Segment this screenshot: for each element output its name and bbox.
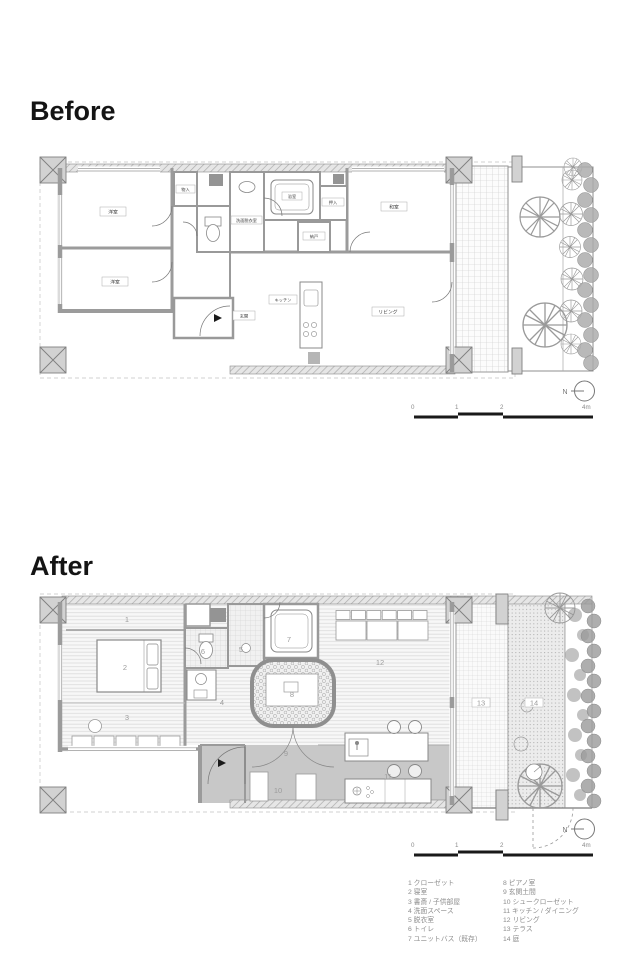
room-label-bed2: 洋室 xyxy=(102,277,128,286)
svg-text:キッチン: キッチン xyxy=(275,298,292,303)
room-number-1: 1 xyxy=(125,615,129,624)
room-label-kitchen: キッチン xyxy=(269,295,297,304)
room-label-living: リビング xyxy=(372,307,404,316)
top-wall xyxy=(62,596,592,604)
toilet-icon xyxy=(205,217,221,242)
svg-text:4m: 4m xyxy=(582,404,591,411)
legend-item-5: 5 脱衣室 xyxy=(408,916,503,925)
room-label-bath: 浴室 xyxy=(282,192,302,200)
svg-text:和室: 和室 xyxy=(389,204,399,211)
svg-text:物入: 物入 xyxy=(181,186,190,193)
svg-text:1: 1 xyxy=(455,842,459,849)
bottom-wall xyxy=(230,366,455,374)
room-number-5: 5 xyxy=(239,645,243,654)
bed xyxy=(97,640,161,692)
room-number-2: 2 xyxy=(123,663,127,672)
north-indicator: N xyxy=(562,819,594,839)
room-label-bed1: 洋室 xyxy=(100,207,126,216)
legend-item-12: 12 リビング xyxy=(503,916,633,925)
room-number-3: 3 xyxy=(125,713,129,722)
scale-bar: 0 1 2 4m xyxy=(411,842,593,857)
legend-item-13: 13 テラス xyxy=(503,925,633,934)
sofa xyxy=(336,611,428,641)
svg-text:0: 0 xyxy=(411,404,415,411)
bathtub xyxy=(271,610,312,652)
legend-item-4: 4 洗面スペース xyxy=(408,907,503,916)
svg-text:納戸: 納戸 xyxy=(310,233,318,240)
svg-text:浴室: 浴室 xyxy=(288,193,296,200)
legend-item-1: 1 クローゼット xyxy=(408,879,503,888)
after-title: After xyxy=(30,551,93,582)
vanity-counter xyxy=(187,670,216,700)
room-number-8: 8 xyxy=(290,690,294,699)
room-number-11: 11 xyxy=(384,772,392,781)
svg-text:4m: 4m xyxy=(582,842,591,849)
svg-text:リビング: リビング xyxy=(378,309,397,316)
room-number-10: 10 xyxy=(274,786,282,795)
before-title: Before xyxy=(30,96,116,127)
svg-text:14: 14 xyxy=(530,699,538,708)
balcony-floor xyxy=(456,166,508,372)
washbasin-icon xyxy=(239,182,255,193)
svg-text:洗面脱衣室: 洗面脱衣室 xyxy=(236,217,257,224)
room-label-monoire: 物入 xyxy=(176,185,195,193)
legend-column-2: 8 ピアノ室 9 玄関土間 10 シュークローゼット 11 キッチン / ダイニ… xyxy=(503,879,633,944)
stool-icon xyxy=(89,720,102,733)
legend-column-1: 1 クローゼット 2 寝室 3 書斎 / 子供部屋 4 洗面スペース 5 脱衣室… xyxy=(408,879,503,944)
room-label-washitsu: 和室 xyxy=(381,202,407,211)
before-floor-plan: 洋室 洋室 和室 リビング キッチン 玄関 浴室 洗面脱衣室 押入 納戸 物入 xyxy=(0,150,640,440)
room-number-14: 14 xyxy=(525,698,543,708)
legend-item-14: 14 庭 xyxy=(503,935,633,944)
room-number-9: 9 xyxy=(284,749,288,758)
svg-text:1: 1 xyxy=(455,404,459,411)
legend-item-2: 2 寝室 xyxy=(408,888,503,897)
shaft xyxy=(210,608,226,622)
svg-text:13: 13 xyxy=(477,699,485,708)
svg-text:0: 0 xyxy=(411,842,415,849)
room-number-7: 7 xyxy=(287,635,291,644)
room-number-4: 4 xyxy=(220,698,224,707)
svg-text:2: 2 xyxy=(500,404,504,411)
room-label-oshiire: 押入 xyxy=(322,198,344,206)
room-number-6: 6 xyxy=(201,647,205,656)
svg-text:N: N xyxy=(562,827,567,834)
svg-text:洋室: 洋室 xyxy=(110,279,120,286)
legend-item-9: 9 玄関土間 xyxy=(503,888,633,897)
room-label-senmen: 洗面脱衣室 xyxy=(231,216,262,224)
svg-text:洋室: 洋室 xyxy=(108,209,118,216)
legend-item-8: 8 ピアノ室 xyxy=(503,879,633,888)
legend-item-11: 11 キッチン / ダイニング xyxy=(503,907,633,916)
legend-item-7: 7 ユニットバス（既存） xyxy=(408,935,503,944)
north-indicator: N xyxy=(562,381,594,401)
svg-text:玄関: 玄関 xyxy=(240,313,248,320)
kitchen-counter xyxy=(300,282,322,348)
kitchen-counter xyxy=(345,779,431,803)
page-root: Before xyxy=(0,0,640,975)
north-icon xyxy=(571,819,595,839)
svg-text:2: 2 xyxy=(500,842,504,849)
room-number-13: 13 xyxy=(472,698,490,708)
legend-item-10: 10 シュークローゼット xyxy=(503,898,633,907)
room-number-12: 12 xyxy=(376,658,384,667)
after-floor-plan: 1 2 3 4 5 6 7 8 9 10 11 12 13 14 N 0 1 2 xyxy=(0,590,640,880)
scale-bar: 0 1 2 4m xyxy=(411,404,593,419)
room-label-genkan: 玄関 xyxy=(233,311,255,320)
room-label-nando: 納戸 xyxy=(303,232,325,240)
legend-item-3: 3 書斎 / 子供部屋 xyxy=(408,898,503,907)
undressing-room xyxy=(228,604,264,666)
kitchen-island xyxy=(345,733,428,761)
north-icon xyxy=(571,381,595,401)
svg-text:押入: 押入 xyxy=(329,199,338,206)
legend: 1 クローゼット 2 寝室 3 書斎 / 子供部屋 4 洗面スペース 5 脱衣室… xyxy=(408,879,633,944)
svg-text:N: N xyxy=(562,389,567,396)
legend-item-6: 6 トイレ xyxy=(408,925,503,934)
